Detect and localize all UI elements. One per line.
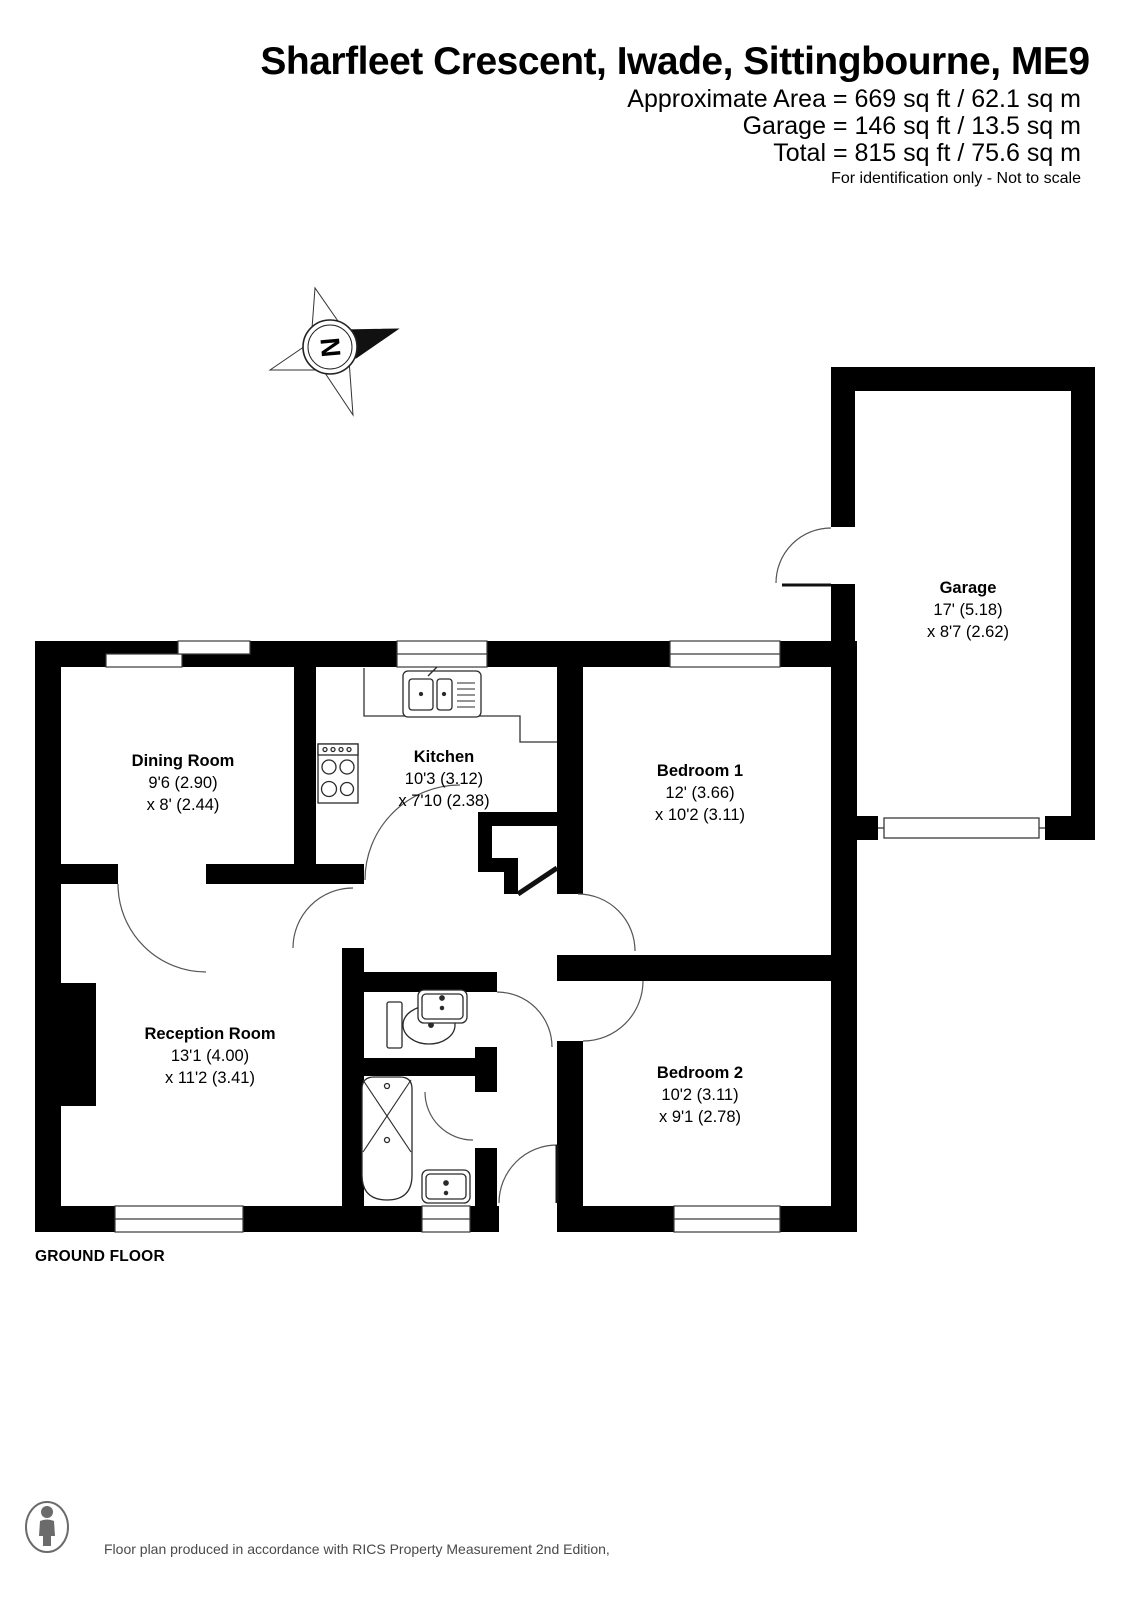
person-icon [26,1502,68,1552]
bath-icon [362,1077,412,1200]
footer-credits: Floor plan produced in accordance with R… [104,1492,740,1599]
garage-side-door-arc [776,528,831,583]
room-label-reception: Reception Room 13'1 (4.00) x 11'2 (3.41) [144,1023,275,1089]
room-label-bedroom1: Bedroom 1 12' (3.66) x 10'2 (3.11) [655,760,745,826]
room-label-garage: Garage 17' (5.18) x 8'7 (2.62) [927,577,1009,643]
bedroom2-door-arc [583,981,643,1041]
cupboard-door [518,868,557,894]
room-label-bedroom2: Bedroom 2 10'2 (3.11) x 9'1 (2.78) [657,1062,743,1128]
wc-door-arc [497,992,552,1047]
bedroom1-dim1: 12' (3.66) [655,782,745,804]
bedroom1-name: Bedroom 1 [655,760,745,782]
kitchen-name: Kitchen [398,746,489,768]
reception-dim2: x 11'2 (3.41) [144,1067,275,1089]
room-label-dining: Dining Room 9'6 (2.90) x 8' (2.44) [132,750,235,816]
back-door-opening [499,1206,557,1232]
footer-line1: Floor plan produced in accordance with R… [104,1538,740,1561]
stove-icon [318,744,358,803]
dining-window [106,654,182,667]
bedroom2-name: Bedroom 2 [657,1062,743,1084]
bedroom1-dim2: x 10'2 (3.11) [655,804,745,826]
garage-dim1: 17' (5.18) [927,599,1009,621]
dining-room-dim2: x 8' (2.44) [132,794,235,816]
kitchen-dim1: 10'3 (3.12) [398,768,489,790]
garage-dim2: x 8'7 (2.62) [927,621,1009,643]
bathroom-basin-icon [422,1170,470,1203]
kitchen-dim2: x 7'10 (2.38) [398,790,489,812]
wc-basin-icon [418,990,467,1023]
dining-room-name: Dining Room [132,750,235,772]
reception-dim1: 13'1 (4.00) [144,1045,275,1067]
bedroom1-door-arc [578,894,635,951]
back-door-arc [499,1145,557,1203]
bathroom-door-arc [425,1092,473,1140]
room-label-kitchen: Kitchen 10'3 (3.12) x 7'10 (2.38) [398,746,489,812]
garage-name: Garage [927,577,1009,599]
floor-label: GROUND FLOOR [35,1248,165,1266]
dining-window [178,641,250,654]
dining-door-arc [118,884,206,972]
bedroom2-dim1: 10'2 (3.11) [657,1084,743,1106]
kitchen-sink-icon [403,667,481,717]
floorplan-page: Sharfleet Crescent, Iwade, Sittingbourne… [0,0,1131,1599]
bedroom2-dim2: x 9'1 (2.78) [657,1106,743,1128]
reception-name: Reception Room [144,1023,275,1045]
reception-door-arc [293,888,353,948]
dining-room-dim1: 9'6 (2.90) [132,772,235,794]
garage-door [878,818,1045,838]
windows [106,641,780,1232]
